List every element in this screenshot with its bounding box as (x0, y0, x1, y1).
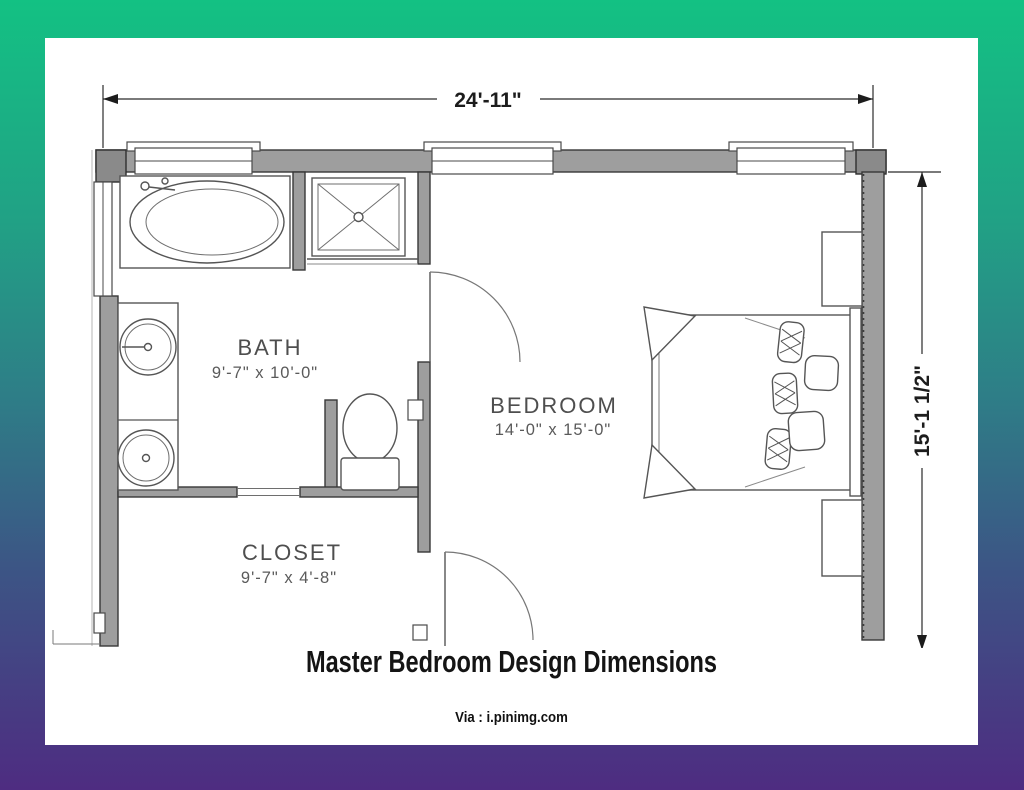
room-label-closet: CLOSET (242, 540, 342, 565)
floor-plan-card: 24'-11" 15'-1 1/2" (45, 38, 978, 745)
dimension-width: 24'-11" (103, 85, 873, 148)
room-label-bath: BATH (237, 335, 302, 360)
figure-credit: Via : i.pinimg.com (101, 709, 922, 726)
headboard (850, 308, 861, 496)
room-size-bedroom: 14'-0" x 15'-0" (495, 421, 611, 439)
toilet (341, 394, 423, 490)
room-labels: BATH 9'-7" x 10'-0" BEDROOM 14'-0" x 15'… (212, 335, 618, 587)
nightstand-bottom (822, 500, 862, 576)
vanity-sinks (118, 303, 178, 490)
room-size-bath: 9'-7" x 10'-0" (212, 364, 318, 382)
figure-title: Master Bedroom Design Dimensions (157, 644, 866, 680)
bed (644, 307, 861, 498)
door-bath (430, 272, 520, 362)
dimension-height-label: 15'-1 1/2" (911, 365, 934, 457)
floor-plan-drawing: 24'-11" 15'-1 1/2" (45, 38, 978, 648)
dimension-width-label: 24'-11" (454, 89, 522, 112)
wall-accessory (408, 400, 423, 420)
room-label-bedroom: BEDROOM (490, 393, 618, 418)
shower (307, 178, 418, 264)
nightstand-top (822, 232, 862, 306)
dimension-height: 15'-1 1/2" (888, 172, 941, 648)
bathtub (120, 176, 290, 268)
door-entry (445, 552, 533, 646)
room-size-closet: 9'-7" x 4'-8" (241, 569, 337, 587)
